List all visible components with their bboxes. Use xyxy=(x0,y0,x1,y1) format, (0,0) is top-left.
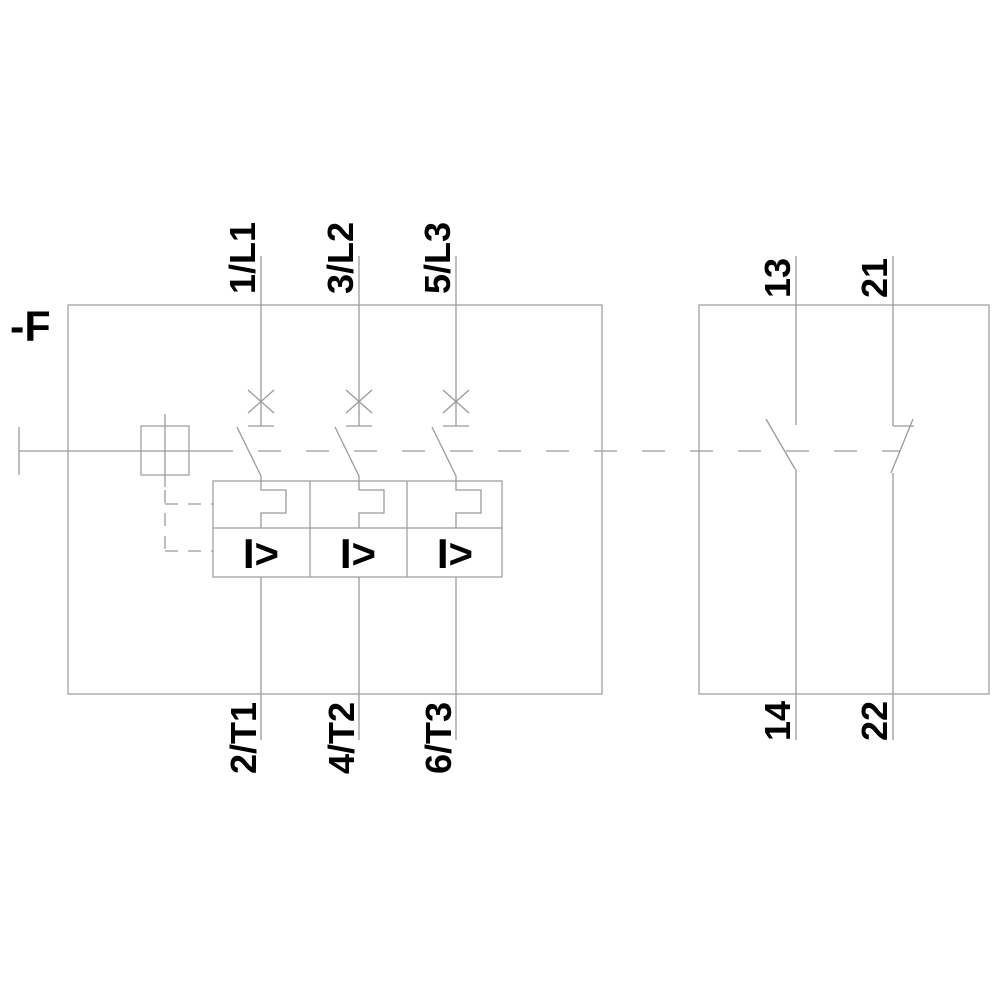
thermal-overload-trip-symbol xyxy=(456,481,481,528)
nc-contact-moving-arm xyxy=(891,419,913,473)
aux-nc-bottom-terminal-label: 22 xyxy=(854,701,895,741)
magnetic-trip-symbol-pole2: I> xyxy=(340,530,376,577)
manual-operator-terminal xyxy=(19,427,210,475)
magnetic-trip-symbol-pole3: I> xyxy=(437,530,473,577)
no-contact-moving-arm xyxy=(766,419,795,469)
thermal-overload-trip-symbol xyxy=(261,481,286,528)
aux-nc-top-terminal-label: 21 xyxy=(854,258,895,298)
pole3-bottom-terminal-label: 6/T3 xyxy=(418,702,459,774)
main-breaker-enclosure xyxy=(68,305,602,694)
circuit-schematic: -F 1/L1 2/T1 xyxy=(0,0,1000,1000)
aux-contact-enclosure xyxy=(699,305,989,694)
magnetic-trip-symbol-pole1: I> xyxy=(243,530,279,577)
trip-unit-block: I> I> I> xyxy=(213,481,502,577)
pole3-top-terminal-label: 5/L3 xyxy=(417,222,458,294)
pole2-top-terminal-label: 3/L2 xyxy=(320,222,361,294)
device-designation-label: -F xyxy=(10,303,51,351)
pole1-top-terminal-label: 1/L1 xyxy=(222,222,263,294)
thermal-overload-trip-symbol xyxy=(359,481,384,528)
pole2-bottom-terminal-label: 4/T2 xyxy=(321,702,362,774)
aux-no-bottom-terminal-label: 14 xyxy=(757,701,798,741)
aux-nc-contact: 21 22 xyxy=(854,256,914,741)
pole1-bottom-terminal-label: 2/T1 xyxy=(223,702,264,774)
mechanical-link-to-trip-units xyxy=(165,490,213,551)
aux-no-contact: 13 14 xyxy=(757,256,798,741)
schematic-page: -F 1/L1 2/T1 xyxy=(0,0,1000,1000)
aux-no-top-terminal-label: 13 xyxy=(757,258,798,298)
moving-contact-arm xyxy=(237,427,261,476)
